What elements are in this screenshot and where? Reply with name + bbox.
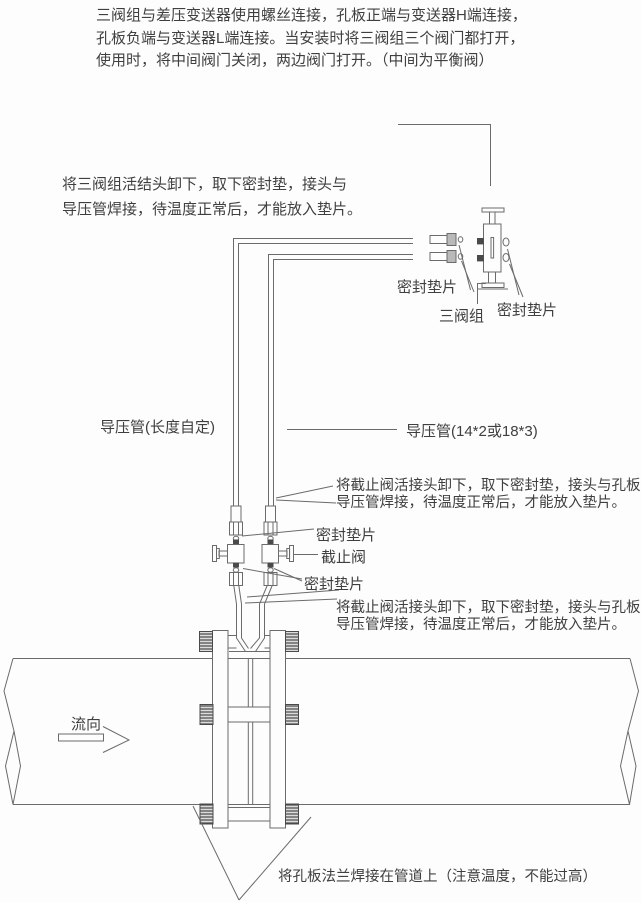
stop-valve-note-upper-line1: 将截止阀活接头卸下，取下密封垫，接头与孔板 bbox=[336, 478, 641, 495]
label-stop-valve: 截止阀 bbox=[321, 546, 366, 567]
manifold-union-fittings bbox=[430, 234, 463, 263]
stop-valve-note-lower-line2: 导压管焊接，待温度正常后，才能放入垫片。 bbox=[336, 617, 641, 634]
impulse-pipe-right bbox=[269, 255, 414, 507]
union-nut bbox=[230, 573, 243, 586]
orifice-plate bbox=[248, 659, 252, 805]
valve-handle-stem bbox=[219, 551, 228, 556]
leader-gasket-left-1 bbox=[459, 245, 471, 290]
upper-stem bbox=[490, 212, 496, 224]
pipe-break-right bbox=[628, 659, 639, 805]
handle-bar bbox=[482, 208, 504, 212]
label-seal-gasket-left: 密封垫片 bbox=[397, 276, 457, 297]
gasket-dot bbox=[233, 568, 238, 573]
top-bolt-bar bbox=[228, 636, 270, 649]
stop-valve-left bbox=[213, 506, 245, 586]
installation-diagram bbox=[0, 0, 641, 903]
leader-note-lower-2 bbox=[245, 599, 337, 603]
leader-note-upper-2 bbox=[276, 500, 336, 503]
impulse-pipe-left bbox=[234, 239, 414, 507]
top-note-line1: 三阀组与差压变送器使用螺丝连接，孔板正端与变送器H端连接， bbox=[96, 5, 527, 28]
orifice-flange-assembly bbox=[200, 631, 299, 829]
manifold-body bbox=[484, 224, 502, 272]
pipe-break-right-lens bbox=[621, 731, 630, 805]
manifold-note-line2: 导压管焊接，待温度正常后，才能放入垫片。 bbox=[62, 197, 362, 222]
leader-valve-gasket-top bbox=[242, 529, 314, 536]
label-flow-direction: 流向 bbox=[71, 713, 101, 734]
stop-valve-note-upper: 将截止阀活接头卸下，取下密封垫，接头与孔板 导压管焊接，待温度正常后，才能放入垫… bbox=[336, 478, 641, 512]
lower-stem bbox=[489, 272, 496, 283]
valve-port-bottom bbox=[268, 563, 274, 568]
union-tube bbox=[231, 506, 241, 522]
label-seal-gasket-valve-bottom: 密封垫片 bbox=[304, 573, 364, 594]
pipe-break-left-lens bbox=[13, 731, 21, 805]
port-lower bbox=[477, 255, 484, 261]
union-tube bbox=[266, 506, 276, 522]
transmitter-connector-line bbox=[398, 125, 491, 187]
stop-valve-right bbox=[262, 506, 294, 586]
gasket-ring bbox=[503, 254, 509, 262]
valve-port-top bbox=[233, 540, 239, 545]
union-nut bbox=[230, 522, 243, 535]
valve-port-top bbox=[268, 540, 274, 545]
valve-handle-stem bbox=[279, 551, 288, 556]
label-weld-note: 将孔板法兰焊接在管道上（注意温度，不能过高） bbox=[278, 865, 597, 886]
top-note-line2: 孔板负端与变送器L端连接。当安装时将三阀组三个阀门都打开， bbox=[96, 28, 527, 51]
leader-gasket-left-2 bbox=[462, 261, 475, 292]
gasket-dot bbox=[458, 237, 463, 242]
stop-valve-note-lower: 将截止阀活接头卸下，取下密封垫，接头与孔板 导压管焊接，待温度正常后，才能放入垫… bbox=[336, 600, 641, 634]
label-impulse-pipe-right: 导压管(14*2或18*3) bbox=[406, 420, 538, 441]
flange-plate-right bbox=[270, 631, 286, 829]
label-seal-gasket-right: 密封垫片 bbox=[497, 299, 557, 320]
middle-bolt-bar bbox=[228, 707, 270, 722]
valve-port-bottom bbox=[233, 563, 239, 568]
leader-weld-2 bbox=[239, 817, 311, 900]
manifold-note-line1: 将三阀组活结头卸下，取下密封垫，接头与 bbox=[62, 172, 362, 197]
flange-plate-left bbox=[213, 631, 229, 829]
orifice-installation-diagram-page: 三阀组与差压变送器使用螺丝连接，孔板正端与变送器H端连接， 孔板负端与变送器L端… bbox=[0, 0, 641, 903]
three-valve-manifold bbox=[477, 208, 509, 289]
valve-body bbox=[262, 545, 279, 564]
label-three-valve-manifold: 三阀组 bbox=[439, 305, 484, 326]
label-impulse-pipe-left: 导压管(长度自定) bbox=[100, 416, 215, 437]
pipe-break-left bbox=[4, 659, 14, 805]
valve-handle bbox=[290, 546, 294, 562]
stop-valve-note-lower-line1: 将截止阀活接头卸下，取下密封垫，接头与孔板 bbox=[336, 600, 641, 617]
top-note: 三阀组与差压变送器使用螺丝连接，孔板正端与变送器H端连接， 孔板负端与变送器L端… bbox=[96, 5, 527, 73]
leader-gasket-right-2 bbox=[510, 264, 524, 297]
gasket-ring bbox=[503, 238, 509, 246]
leader-note-upper-1 bbox=[276, 486, 333, 498]
manifold-note: 将三阀组活结头卸下，取下密封垫，接头与 导压管焊接，待温度正常后，才能放入垫片。 bbox=[62, 172, 362, 222]
gasket-dot bbox=[268, 568, 273, 573]
top-note-line3: 使用时，将中间阀门关闭，两边阀门打开。（中间为平衡阀） bbox=[96, 50, 527, 73]
valve-body bbox=[228, 545, 245, 564]
bottom-bolt-bar bbox=[228, 808, 270, 822]
label-seal-gasket-valve-top: 密封垫片 bbox=[316, 524, 376, 545]
valve-handle bbox=[213, 546, 217, 562]
port-upper bbox=[477, 238, 484, 244]
stop-valve-note-upper-line2: 导压管焊接，待温度正常后，才能放入垫片。 bbox=[336, 495, 641, 512]
